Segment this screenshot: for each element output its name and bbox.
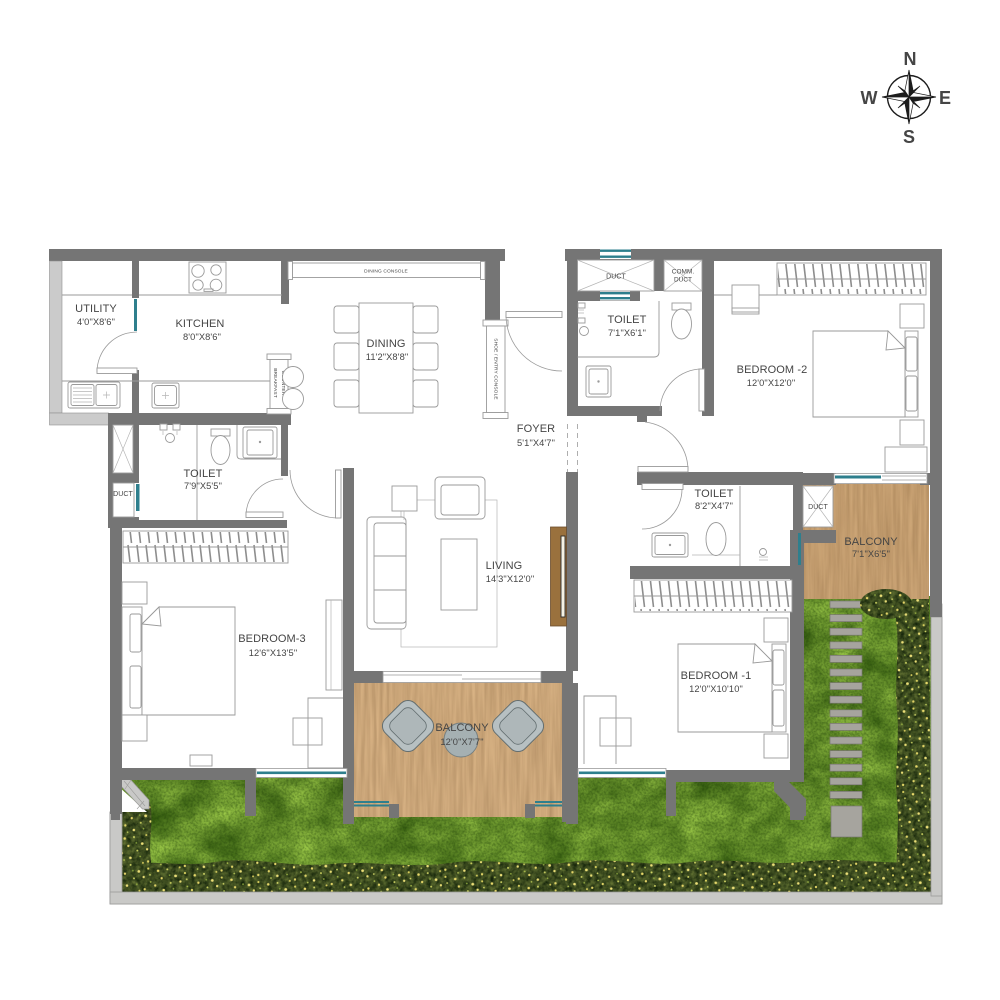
svg-text:BEDROOM-3: BEDROOM-3: [238, 633, 306, 645]
svg-text:DINING: DINING: [366, 338, 405, 350]
svg-text:SHOE / ENTRY CONSOLE: SHOE / ENTRY CONSOLE: [493, 338, 499, 399]
svg-text:DUCT: DUCT: [808, 504, 828, 511]
svg-text:8'0"X8'6": 8'0"X8'6": [183, 332, 221, 342]
svg-text:12'0"X12'0": 12'0"X12'0": [747, 378, 795, 388]
svg-text:14'3"X12'0": 14'3"X12'0": [486, 574, 534, 584]
svg-text:5'1"X4'7": 5'1"X4'7": [517, 438, 555, 448]
svg-text:BALCONY: BALCONY: [435, 722, 489, 734]
svg-text:DUCT: DUCT: [606, 274, 626, 281]
svg-text:DUCT: DUCT: [674, 277, 692, 284]
svg-text:7'9"X5'5": 7'9"X5'5": [184, 481, 222, 491]
svg-text:E: E: [939, 88, 951, 108]
svg-text:LIVING: LIVING: [486, 560, 523, 572]
svg-text:DUCT: DUCT: [113, 491, 133, 498]
svg-text:TOILET: TOILET: [695, 488, 734, 500]
svg-text:4'0"X8'6": 4'0"X8'6": [77, 317, 115, 327]
svg-text:UTILITY: UTILITY: [75, 303, 117, 315]
svg-text:7'1"X6'1": 7'1"X6'1": [608, 328, 646, 338]
svg-text:TOILET: TOILET: [184, 468, 223, 480]
svg-text:W: W: [861, 88, 878, 108]
svg-text:11'2"X8'8": 11'2"X8'8": [366, 352, 409, 362]
svg-text:S: S: [903, 127, 915, 147]
svg-text:12'0"X10'10": 12'0"X10'10": [689, 684, 743, 694]
svg-text:BALCONY: BALCONY: [844, 536, 898, 548]
svg-text:DINING CONSOLE: DINING CONSOLE: [364, 269, 408, 275]
svg-text:12'6"X13'5": 12'6"X13'5": [249, 648, 297, 658]
svg-text:N: N: [904, 49, 917, 69]
svg-text:BEDROOM -2: BEDROOM -2: [737, 364, 808, 376]
svg-text:COMM.: COMM.: [672, 269, 695, 276]
svg-text:BREAKFAST: BREAKFAST: [272, 368, 278, 398]
svg-text:KITCHEN: KITCHEN: [176, 318, 225, 330]
svg-text:TOILET: TOILET: [608, 314, 647, 326]
svg-text:8'2"X4'7": 8'2"X4'7": [695, 501, 733, 511]
svg-text:FOYER: FOYER: [517, 423, 555, 435]
svg-text:7'1"X6'5": 7'1"X6'5": [852, 549, 890, 559]
svg-text:12'0"X7'7": 12'0"X7'7": [440, 737, 483, 747]
svg-text:BEDROOM -1: BEDROOM -1: [681, 670, 752, 682]
